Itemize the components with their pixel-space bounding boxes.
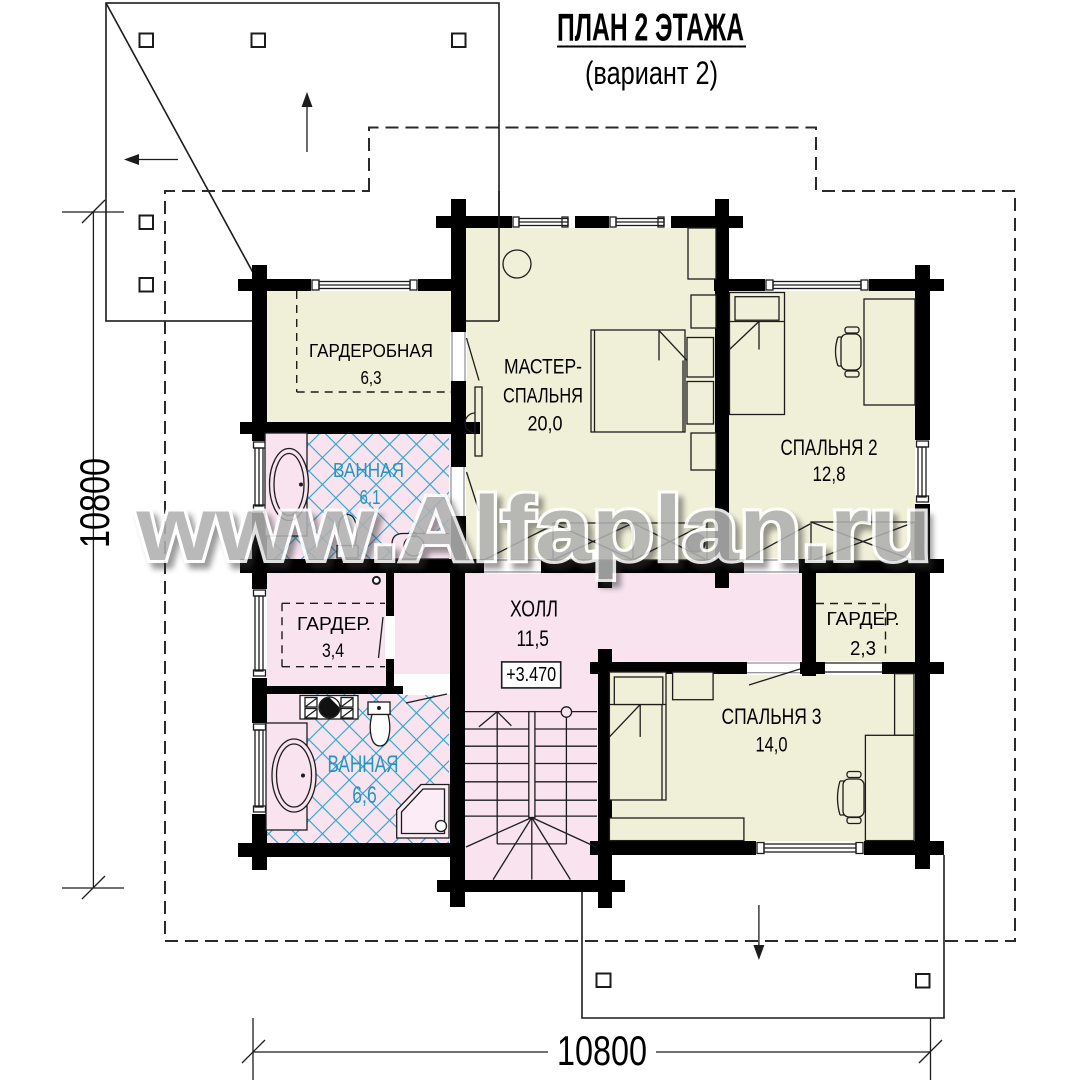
svg-text:6,3: 6,3 (361, 368, 382, 388)
svg-text:10800: 10800 (71, 458, 118, 548)
svg-text:6,6: 6,6 (352, 782, 377, 809)
svg-text:3,4: 3,4 (322, 641, 344, 662)
svg-text:(вариант 2): (вариант 2) (585, 55, 718, 91)
svg-text:+3.470: +3.470 (506, 664, 556, 686)
svg-text:2,3: 2,3 (850, 638, 876, 660)
svg-text:www.Alfaplan.ru: www.Alfaplan.ru (135, 478, 931, 580)
svg-text:ВАННАЯ: ВАННАЯ (328, 751, 399, 778)
svg-text:20,0: 20,0 (528, 413, 563, 436)
svg-text:ХОЛЛ: ХОЛЛ (510, 596, 558, 622)
svg-text:ГАРДЕРОБНАЯ: ГАРДЕРОБНАЯ (309, 341, 433, 361)
svg-text:ПЛАН 2 ЭТАЖА: ПЛАН 2 ЭТАЖА (557, 7, 744, 50)
svg-text:10800: 10800 (557, 1027, 647, 1074)
svg-text:14,0: 14,0 (756, 734, 788, 757)
svg-text:СПАЛЬНЯ: СПАЛЬНЯ (503, 385, 583, 408)
svg-text:ГАРДЕР.: ГАРДЕР. (827, 608, 900, 629)
svg-text:СПАЛЬНЯ 2: СПАЛЬНЯ 2 (781, 435, 878, 460)
svg-text:ГАРДЕР.: ГАРДЕР. (297, 613, 371, 634)
svg-text:СПАЛЬНЯ 3: СПАЛЬНЯ 3 (722, 704, 822, 729)
svg-text:МАСТЕР-: МАСТЕР- (504, 356, 582, 379)
svg-text:11,5: 11,5 (516, 626, 549, 651)
